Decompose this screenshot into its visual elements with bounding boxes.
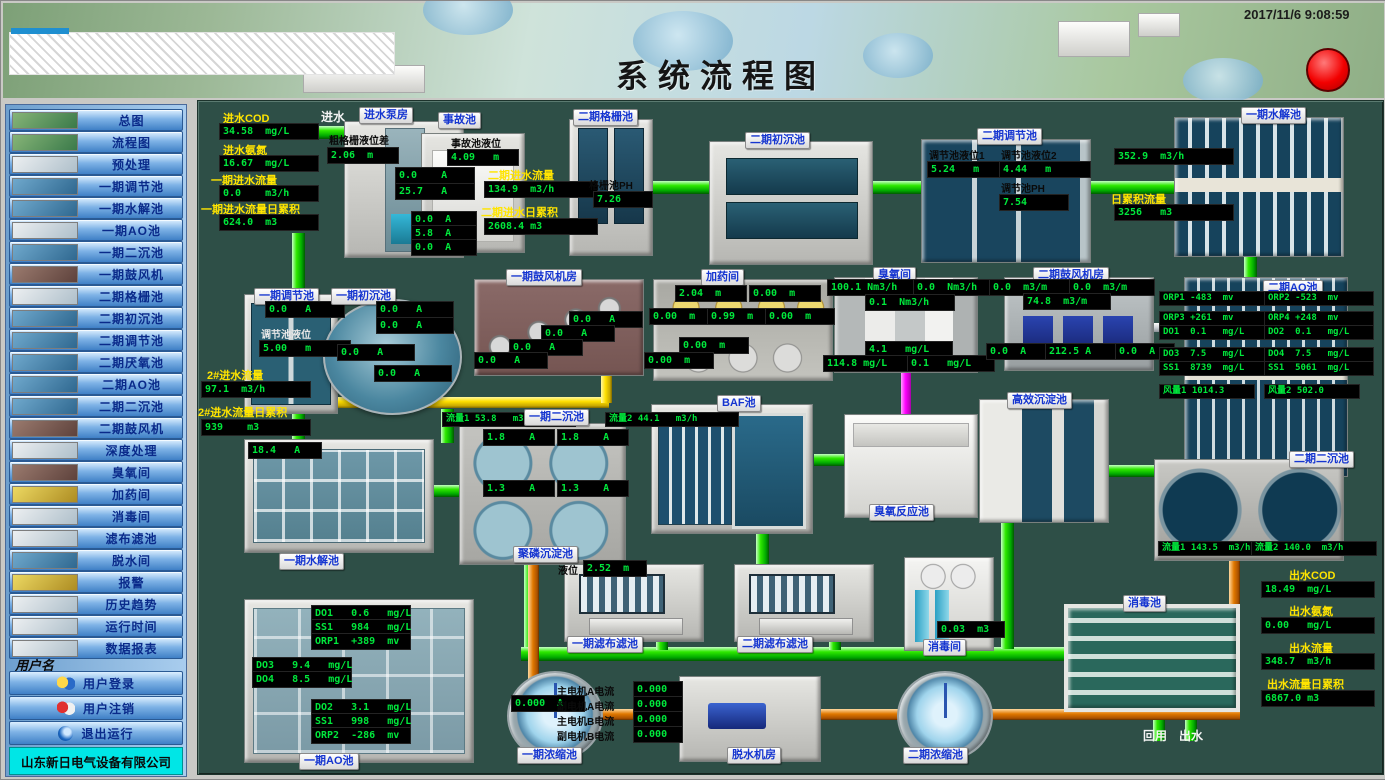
disinfect-room-tag[interactable]: 消毒间 [923, 639, 966, 656]
ao2-do4: DO4 7.5 mg/L [1264, 347, 1374, 362]
accident-level-label: 事故池液位 [451, 135, 501, 150]
accident-pool-tag[interactable]: 事故池 [438, 112, 481, 129]
disroom-value: 0.03 m3 [937, 621, 1005, 638]
p1-hydrolysis-mid-tag[interactable]: 一期水解池 [279, 553, 344, 570]
dewater-motor2-label: 副电机A电流 [557, 698, 614, 713]
outflow-label: 出水 [1179, 727, 1203, 744]
thumbnail [12, 420, 78, 437]
hydro1-flow-value: 352.9 m3/h [1114, 148, 1234, 165]
sidebar-item-p2-secondary-sed[interactable]: 二期二沉池 [9, 395, 183, 417]
blower1-current-4: 0.0 A [474, 352, 548, 369]
out-nh3-value: 0.00 mg/L [1261, 617, 1375, 634]
ao1-do4: DO4 8.5 mg/L [252, 671, 352, 688]
thumbnail [12, 618, 78, 635]
sed1b-flow2: 流量2 44.1 m3/h [605, 412, 739, 427]
thumbnail [12, 596, 78, 613]
dosing-level-5: 0.00 m [765, 308, 835, 325]
ao2-orp4: ORP4 +248 mv [1264, 311, 1374, 326]
sidebar-item-p2-anaerobic[interactable]: 二期厌氧池 [9, 351, 183, 373]
masked-logo-tab [11, 28, 69, 34]
p2-inflow-value: 134.9 m3/h [484, 181, 598, 198]
thumbnail [12, 266, 78, 283]
p2-cloth-filter-tag[interactable]: 二期滤布滤池 [737, 636, 813, 653]
sed1b-current-4: 1.3 A [557, 480, 629, 497]
aerial-building [1058, 21, 1130, 57]
sidebar-item-flow-diagram[interactable]: 流程图 [9, 131, 183, 153]
reg2-level2-value: 4.44 m [999, 161, 1091, 178]
p2-thickener-tag[interactable]: 二期浓缩池 [903, 747, 968, 764]
reg2-level1-label: 调节池液位1 [929, 147, 985, 162]
thumbnail [12, 222, 78, 239]
pump-current-1: 0.0 A [395, 167, 475, 184]
out-cod-value: 18.49 mg/L [1261, 581, 1375, 598]
blower2-current-2: 212.5 A [1045, 343, 1121, 360]
p1-cloth-filter-tag[interactable]: 一期滤布滤池 [567, 636, 643, 653]
pump-current-2: 25.7 A [395, 183, 475, 200]
thumbnail [12, 530, 78, 547]
ao2-airflow-1: 风量1 1014.3 [1159, 384, 1255, 399]
aerial-pond [423, 0, 513, 35]
p1-inflow-value: 0.0 m3/h [219, 185, 319, 202]
sed1b-current-2: 1.8 A [557, 429, 629, 446]
dewater-motor1-label: 主电机A电流 [557, 683, 614, 698]
ozone-reactor-graphic [844, 414, 978, 518]
p1-blower-room-tag[interactable]: 一期鼓风机房 [506, 269, 582, 286]
p2-primary-sed-tag[interactable]: 二期初沉池 [745, 132, 810, 149]
out-flow-value: 348.7 m3/h [1261, 653, 1375, 670]
ao2-ss2: SS1 5061 mg/L [1264, 361, 1374, 376]
ao2-orp1: ORP1 -483 mv [1159, 291, 1269, 306]
thumbnail [12, 552, 78, 569]
sidebar-item-runtime[interactable]: 运行时间 [9, 615, 183, 637]
user-logout-icon [57, 701, 75, 715]
pump-house-tag[interactable]: 进水泵房 [359, 107, 413, 124]
dewater-motor4-label: 副电机B电流 [557, 728, 614, 743]
sidebar-item-advanced-treatment[interactable]: 深度处理 [9, 439, 183, 461]
dosing-room-tag[interactable]: 加药间 [701, 269, 744, 286]
pump-current-5: 0.0 A [411, 239, 477, 256]
sidebar-item-disinfect-room[interactable]: 消毒间 [9, 505, 183, 527]
p1-thickener-tag[interactable]: 一期浓缩池 [517, 747, 582, 764]
page-title: 系统流程图 [481, 51, 961, 97]
green-pipe [646, 181, 711, 194]
blower2-flow-3: 74.8 m3/m [1023, 293, 1111, 310]
sidebar-item-p1-blower[interactable]: 一期鼓风机 [9, 263, 183, 285]
accident-level-value: 4.09 m [447, 149, 519, 166]
hydro1-acc-value: 3256 m3 [1114, 204, 1234, 221]
sidebar-item-dosing-room[interactable]: 加药间 [9, 483, 183, 505]
sidebar-item-ozone-room[interactable]: 臭氧间 [9, 461, 183, 483]
ao2-orp2: ORP2 -523 mv [1264, 291, 1374, 306]
p2-inflow-acc-value: 2608.4 m3 [484, 218, 598, 235]
dewater-motor3-label: 主电机B电流 [557, 713, 614, 728]
ao2-do1: DO1 0.1 mg/L [1159, 325, 1269, 340]
sidebar-item-alarm[interactable]: 报警 [9, 571, 183, 593]
p1-secondary-sed-tag[interactable]: 一期二沉池 [524, 409, 589, 426]
green-pipe [292, 233, 305, 293]
p1-hydrolysis-tag[interactable]: 一期水解池 [1241, 107, 1306, 124]
ao2-do2: DO2 0.1 mg/L [1264, 325, 1374, 340]
reg2-ph-label: 调节池PH [1001, 180, 1045, 195]
sidebar-item-p2-regulating[interactable]: 二期调节池 [9, 329, 183, 351]
ao2-airflow-2: 风量2 502.0 [1264, 384, 1360, 399]
thumbnail [12, 640, 78, 657]
high-eff-sed-graphic [979, 399, 1109, 523]
sed1b-current-1: 1.8 A [483, 429, 555, 446]
disinfect-pool-tag[interactable]: 消毒池 [1123, 595, 1166, 612]
sidebar-item-history-trend[interactable]: 历史趋势 [9, 593, 183, 615]
company-name-bar: 山东新日电气设备有限公司 [9, 747, 183, 775]
aerial-pond [1183, 58, 1263, 103]
sed1b-current-3: 1.3 A [483, 480, 555, 497]
sidebar-item-p1-regulating[interactable]: 一期调节池 [9, 175, 183, 197]
thumbnail [12, 376, 78, 393]
ozone-conc-3: 0.1 mg/L [907, 355, 995, 372]
sidebar-item-p1-secondary-sed[interactable]: 一期二沉池 [9, 241, 183, 263]
poly-sed-tag[interactable]: 聚磷沉淀池 [513, 546, 578, 563]
filter1-level-label: 液位 [558, 562, 578, 577]
green-pipe [869, 181, 923, 194]
thumbnail [12, 464, 78, 481]
sidebar-item-dewater-room[interactable]: 脱水间 [9, 549, 183, 571]
sed1a-current-1: 0.0 A [376, 301, 454, 318]
ao2-do3: DO3 7.5 mg/L [1159, 347, 1269, 362]
exit-icon [58, 726, 73, 741]
sed2b-flow2: 流量2 140.0 m3/h [1251, 541, 1377, 556]
p2-ao-pool-graphic [1184, 277, 1348, 477]
sidebar-item-p2-grid[interactable]: 二期格栅池 [9, 285, 183, 307]
reg2-level2-label: 调节池液位2 [1001, 147, 1057, 162]
p2-secondary-sed-tag[interactable]: 二期二沉池 [1289, 451, 1354, 468]
ozone-reactor-tag[interactable]: 臭氧反应池 [869, 504, 934, 521]
ozone-conc-2: 114.8 mg/L [823, 355, 911, 372]
p1-inflow-acc-value: 624.0 m3 [219, 214, 319, 231]
thumbnail [12, 574, 78, 591]
thumbnail [12, 332, 78, 349]
sidebar-item-p2-ao[interactable]: 二期AO池 [9, 373, 183, 395]
thumbnail [12, 134, 78, 151]
grid-ph-label: 格栅池PH [589, 177, 633, 192]
thumbnail [12, 178, 78, 195]
p2-regulating-tag[interactable]: 二期调节池 [977, 128, 1042, 145]
datetime-display: 2017/11/6 9:08:59 [1244, 7, 1350, 22]
green-pipe [1104, 465, 1158, 477]
thumbnail [12, 156, 78, 173]
sed1a-current-2: 0.0 A [376, 317, 454, 334]
sidebar-item-p1-hydrolysis[interactable]: 一期水解池 [9, 197, 183, 219]
sidebar: 总图 流程图 预处理 一期调节池 一期水解池 一期AO池 一期二沉池 一期鼓风机… [5, 104, 187, 777]
dewater-room-tag[interactable]: 脱水机房 [727, 747, 781, 764]
out-acc-value: 6867.0 m3 [1261, 690, 1375, 707]
filter1-level-value: 2.52 m [583, 560, 647, 577]
user-logout-button[interactable]: 用户注销 [9, 696, 183, 720]
sed1a-current-3: 0.0 A [337, 344, 415, 361]
hydro1b-current: 18.4 A [248, 442, 322, 459]
reg2-ph-value: 7.54 [999, 194, 1069, 211]
p2b-inflow-value: 97.1 m3/h [201, 381, 311, 398]
coarse-screen-level-value: 2.06 m [327, 147, 399, 164]
p2-cloth-filter-graphic [734, 564, 874, 642]
magenta-pipe [901, 371, 911, 417]
thumbnail [12, 244, 78, 261]
sidebar-item-p1-ao[interactable]: 一期AO池 [9, 219, 183, 241]
dosing-level-7: 0.00 m [644, 352, 714, 369]
sidebar-item-overview[interactable]: 总图 [9, 109, 183, 131]
aerial-building [1138, 13, 1180, 37]
scada-window: 系统流程图 2017/11/6 9:08:59 总图 流程图 预处理 一期调节池… [0, 0, 1385, 780]
ao1-orp2: ORP2 -286 mv [311, 727, 411, 744]
dewater-current-4: 0.000 [633, 726, 683, 743]
inlet-cod-value: 34.58 mg/L [219, 123, 319, 140]
thumbnail [12, 354, 78, 371]
grid-ph-value: 7.26 [593, 191, 653, 208]
p2-grid-pool-tag[interactable]: 二期格栅池 [573, 109, 638, 126]
thumbnail [12, 508, 78, 525]
ozone-flow-3: 0.1 Nm3/h [865, 294, 955, 311]
thumbnail [12, 486, 78, 503]
sed1a-current-4: 0.0 A [374, 365, 452, 382]
p2b-inflow-acc-label: 2#进水流量日累积 [198, 404, 287, 420]
thumbnail [12, 112, 78, 129]
green-pipe [429, 485, 463, 497]
baf-pool-tag[interactable]: BAF池 [717, 395, 761, 412]
p1-ao-pool-tag[interactable]: 一期AO池 [299, 753, 359, 770]
alarm-indicator[interactable] [1306, 48, 1350, 92]
ao2-orp3: ORP3 +261 mv [1159, 311, 1269, 326]
ao2-ss1: SS1 8739 mg/L [1159, 361, 1269, 376]
p2b-inflow-acc-value: 939 m3 [201, 419, 311, 436]
high-eff-sed-tag[interactable]: 高效沉淀池 [1007, 392, 1072, 409]
thumbnail [12, 442, 78, 459]
user-login-button[interactable]: 用户登录 [9, 671, 183, 695]
thumbnail [12, 310, 78, 327]
thumbnail [12, 200, 78, 217]
reg1-level-label: 调节池液位 [261, 326, 311, 341]
inlet-nh3-value: 16.67 mg/L [219, 155, 319, 172]
thumbnail [12, 288, 78, 305]
sidebar-item-p2-blower[interactable]: 二期鼓风机 [9, 417, 183, 439]
sidebar-item-p2-primary-sed[interactable]: 二期初沉池 [9, 307, 183, 329]
exit-run-button[interactable]: 退出运行 [9, 721, 183, 745]
green-pipe [814, 454, 848, 466]
coarse-screen-level-label: 粗格栅液位差 [329, 132, 389, 147]
masked-logo-area [9, 32, 395, 75]
sidebar-item-cloth-filter[interactable]: 滤布滤池 [9, 527, 183, 549]
blower2-current-1: 0.0 A [986, 343, 1050, 360]
p1-hydrolysis-pool-graphic [1174, 117, 1344, 257]
green-pipe [756, 529, 769, 565]
ao1-orp1: ORP1 +389 mv [311, 633, 411, 650]
inflow-label: 进水 [321, 108, 345, 125]
sidebar-item-pretreatment[interactable]: 预处理 [9, 153, 183, 175]
dosing-level-1: 2.04 m [675, 285, 747, 302]
dosing-level-2: 0.00 m [749, 285, 821, 302]
p2-primary-sed-graphic [709, 141, 873, 265]
thumbnail [12, 398, 78, 415]
user-login-icon [57, 676, 75, 690]
reuse-label: 回用 [1143, 727, 1167, 744]
disinfect-pool-graphic [1064, 604, 1240, 712]
